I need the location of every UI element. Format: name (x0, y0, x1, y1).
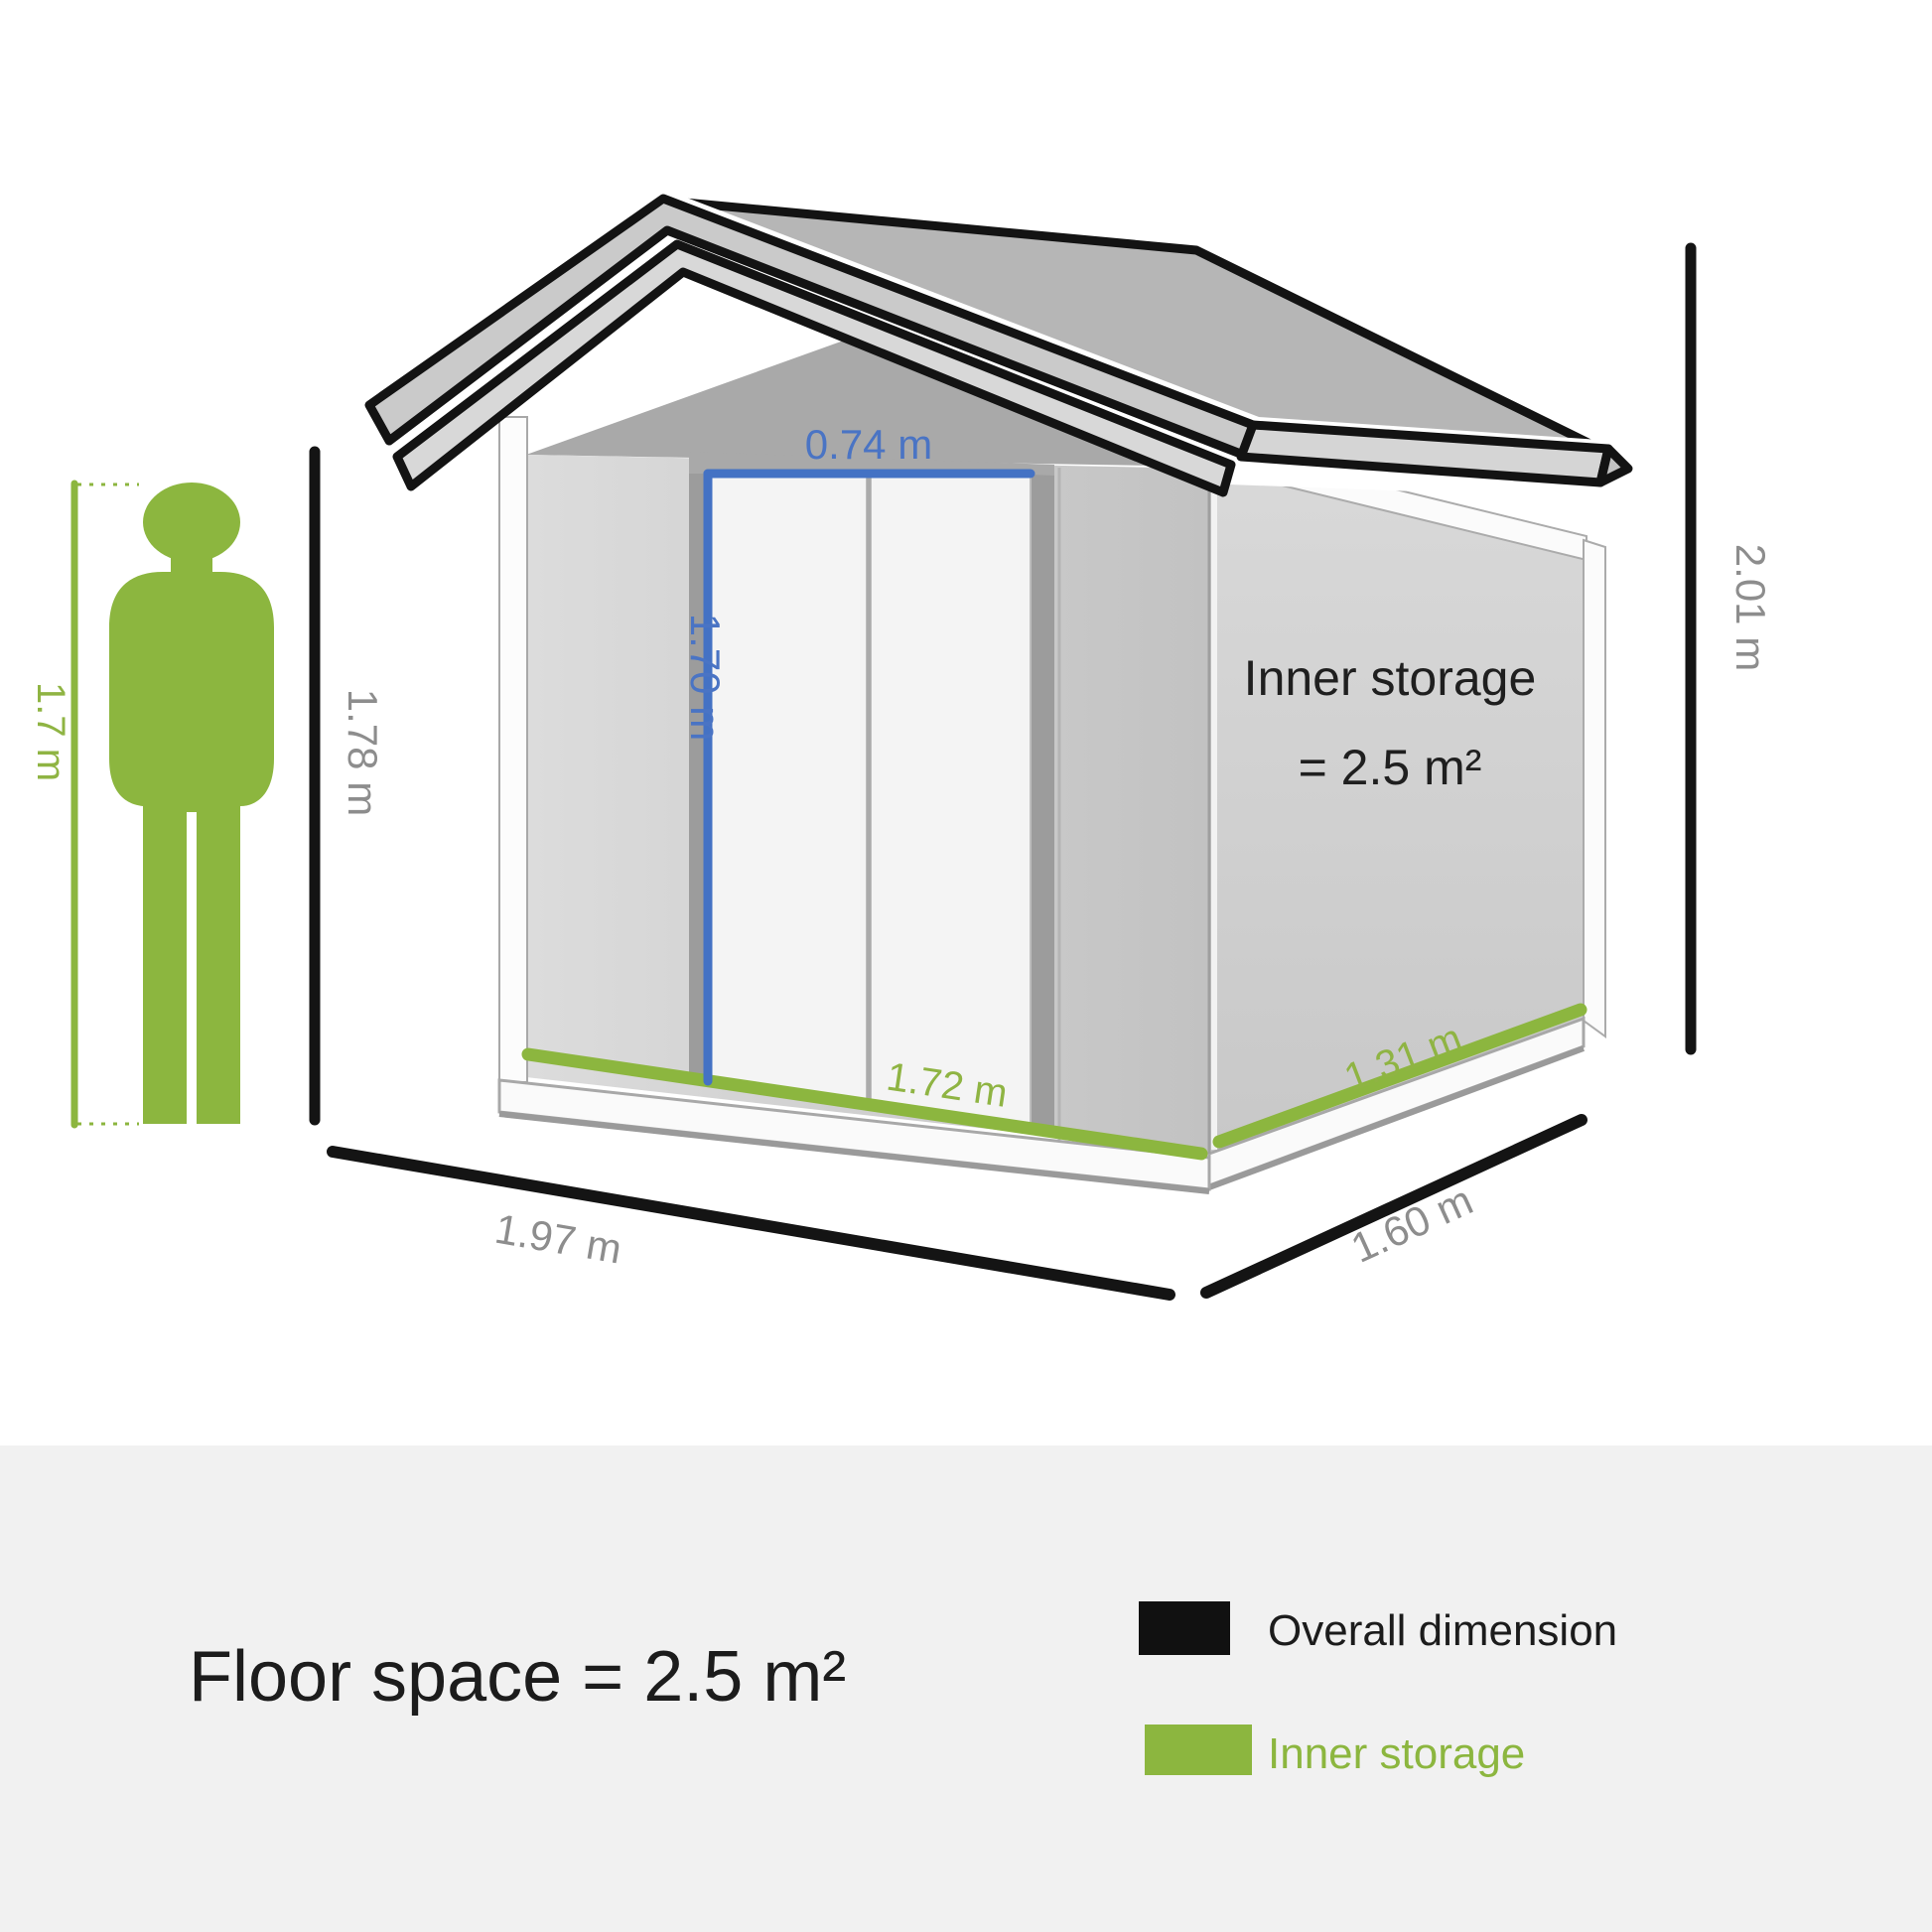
legend-label-overall-dimension: Overall dimension (1268, 1606, 1617, 1656)
floor-space-text: Floor space = 2.5 m² (189, 1636, 846, 1718)
person-height-guide (74, 483, 139, 1125)
legend-label-inner-storage: Inner storage (1268, 1729, 1525, 1779)
person-height-label: 1.7 m (29, 682, 72, 781)
door-height-label: 1.70 m (682, 614, 729, 741)
overall-width-label: 1.97 m (491, 1205, 624, 1273)
door-panel-left (709, 474, 867, 1104)
person-silhouette (109, 483, 274, 1124)
inner-storage-text-line1: Inner storage (1244, 650, 1537, 706)
overall-height-label: 2.01 m (1727, 544, 1774, 671)
right-wall-right-trim (1584, 540, 1605, 1036)
legend-swatch-overall-dimension (1139, 1601, 1230, 1655)
wall-height-label: 1.78 m (340, 689, 386, 816)
door-panel-right (871, 474, 1031, 1132)
overall-depth-label: 1.60 m (1344, 1176, 1479, 1272)
sliding-door (689, 452, 1054, 1138)
door-width-label: 0.74 m (805, 421, 932, 468)
door-right-jamb (1031, 475, 1054, 1138)
front-left-trim (499, 417, 527, 1082)
inner-storage-text-line2: = 2.5 m² (1299, 740, 1482, 795)
legend-swatch-inner-storage (1145, 1725, 1252, 1775)
roof-eave-tip (1600, 449, 1628, 483)
dimension-diagram: Inner storage = 2.5 m² (0, 0, 1932, 1932)
person-body (109, 572, 274, 1124)
